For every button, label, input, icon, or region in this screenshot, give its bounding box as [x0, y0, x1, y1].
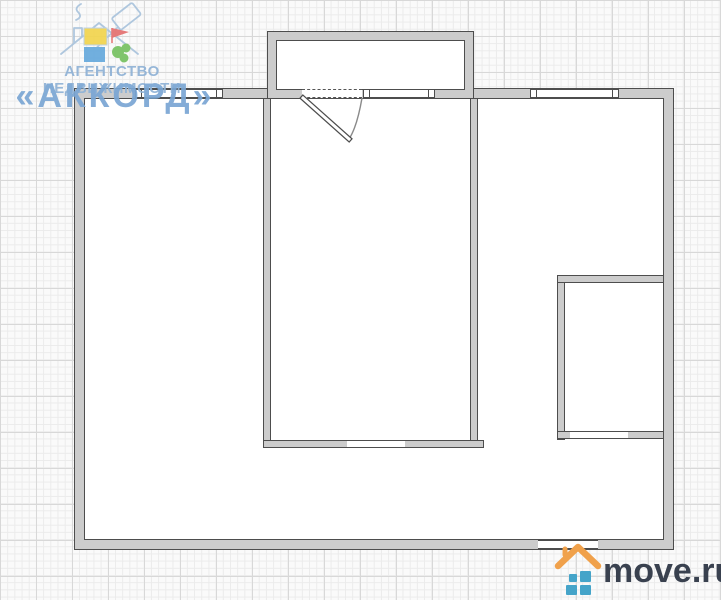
- move-ru-wordmark: move.ru: [603, 549, 721, 593]
- living-room-wall-left: [263, 98, 271, 448]
- move-ru-watermark: move.ru: [552, 543, 721, 598]
- door-arc: [349, 98, 362, 139]
- agency-house-icon: [55, 1, 145, 63]
- move-window-squares: [566, 571, 591, 595]
- floor-plan-image: АГЕНТСТВО НЕДВИЖИМОСТИ «АККОРД» move.ru: [0, 0, 721, 600]
- window-end-cap: [428, 89, 435, 98]
- logo-block-yellow: [84, 28, 107, 45]
- apartment-outer-wall: [75, 89, 673, 549]
- key-head: [111, 2, 141, 30]
- living-room-doorway: [347, 440, 405, 448]
- bathroom-wall-left: [557, 275, 565, 440]
- agency-name-line2: «АККОРД»: [0, 77, 230, 116]
- smoke-curl: [76, 4, 81, 20]
- living-room-wall-right: [470, 98, 478, 448]
- window-top-right: [532, 89, 617, 98]
- agency-watermark: АГЕНТСТВО НЕДВИЖИМОСТИ «АККОРД»: [0, 0, 330, 125]
- window-end-cap: [612, 89, 619, 98]
- logo-leaf-green: [112, 44, 131, 63]
- move-ru-house-icon: [552, 543, 602, 595]
- window-end-cap: [530, 89, 537, 98]
- bathroom-doorway: [570, 431, 628, 439]
- bathroom-wall-top: [557, 275, 664, 283]
- logo-block-blue: [84, 47, 105, 62]
